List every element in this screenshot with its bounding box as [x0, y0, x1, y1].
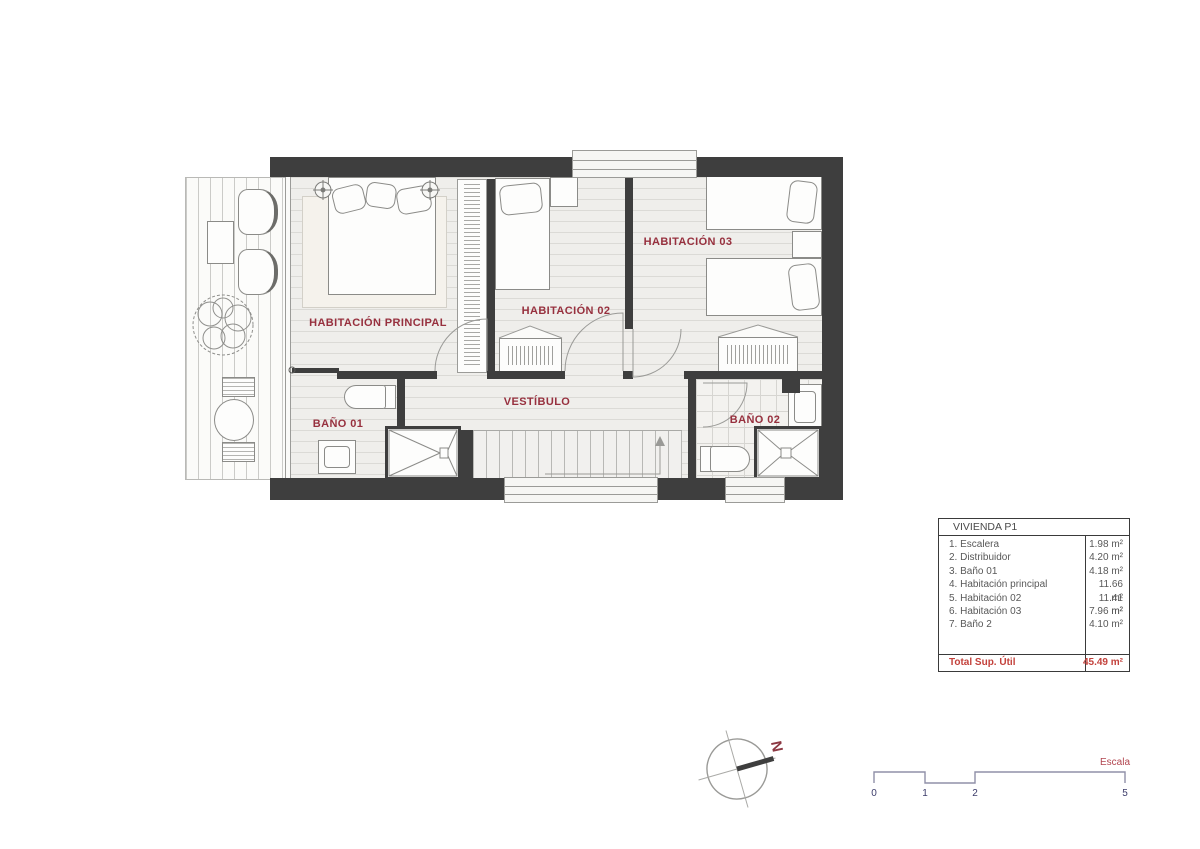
room-label-hab03: HABITACIÓN 03	[644, 236, 733, 248]
room-label-bano02: BAÑO 02	[730, 414, 780, 426]
room-label-hab02: HABITACIÓN 02	[522, 305, 611, 317]
door-arc-hab03	[633, 329, 681, 377]
legend-row: 3. Baño 01 4.18 m²	[939, 565, 1129, 578]
room-label-bano01: BAÑO 01	[313, 418, 363, 430]
scale-tick-1: 1	[922, 788, 928, 799]
legend-row: 1. Escalera 1.98 m²	[939, 538, 1129, 551]
legend-row: 7. Baño 2 4.10 m²	[939, 618, 1129, 631]
scale-label: Escala	[1100, 757, 1130, 768]
scale-tick-0: 0	[871, 788, 877, 799]
legend-row: 2. Distribuidor 4.20 m²	[939, 551, 1129, 564]
room-label-vestibulo: VESTÍBULO	[504, 396, 571, 408]
spotlight-icon	[313, 180, 440, 200]
door-arc-hab02	[565, 313, 623, 371]
legend-row: 5. Habitación 02 11.41 m²	[939, 592, 1129, 605]
scale-tick-2: 2	[972, 788, 978, 799]
stairs-arrow	[545, 442, 660, 474]
plan-linework	[0, 0, 1200, 849]
plant-icon	[193, 295, 253, 355]
floor-plan-canvas: HABITACIÓN PRINCIPAL HABITACIÓN 02 HABIT…	[0, 0, 1200, 849]
stairs-arrow-head	[655, 436, 665, 446]
compass-needle	[737, 759, 774, 769]
legend-title: VIVIENDA P1	[939, 519, 1129, 536]
scale-tick-5: 5	[1122, 788, 1128, 799]
dresser-flap	[499, 326, 562, 338]
dresser-flap	[718, 325, 798, 337]
north-compass	[695, 725, 805, 815]
legend-row: 4. Habitación principal 11.66 m²	[939, 578, 1129, 591]
room-label-principal: HABITACIÓN PRINCIPAL	[309, 317, 447, 329]
legend-table: VIVIENDA P1 1. Escalera 1.98 m² 2. Distr…	[938, 518, 1130, 672]
legend-row: 6. Habitación 03 7.96 m²	[939, 605, 1129, 618]
legend-total-row: Total Sup. Útil 45.49 m²	[939, 654, 1129, 671]
